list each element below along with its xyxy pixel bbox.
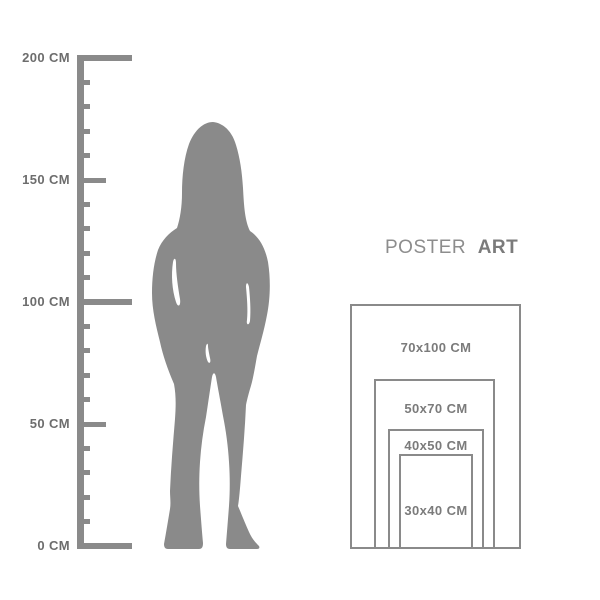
ruler-tick-150cm: [77, 178, 106, 183]
ruler-tick-10cm: [77, 519, 90, 524]
ruler-tick-90cm: [77, 324, 90, 329]
woman-silhouette-body: [152, 122, 270, 549]
ruler-label-150cm: 150 CM: [0, 171, 70, 189]
ruler-tick-20cm: [77, 495, 90, 500]
title-word-poster: POSTER: [385, 237, 466, 258]
ruler-label-100cm: 100 CM: [0, 293, 70, 311]
ruler-tick-80cm: [77, 348, 90, 353]
ruler-tick-120cm: [77, 251, 90, 256]
size-label-70x100: 70x100 CM: [351, 339, 521, 357]
ruler-tick-140cm: [77, 202, 90, 207]
ruler-label-0cm: 0 CM: [0, 537, 70, 555]
ruler-tick-50cm: [77, 422, 106, 427]
ruler-tick-200cm: [77, 55, 132, 61]
ruler-tick-110cm: [77, 275, 90, 280]
ruler-tick-130cm: [77, 226, 90, 231]
size-label-40x50: 40x50 CM: [351, 437, 521, 455]
poster-art-title: POSTER ART: [385, 237, 518, 259]
ruler-tick-70cm: [77, 373, 90, 378]
ruler-tick-30cm: [77, 470, 90, 475]
woman-silhouette-figure: [150, 118, 276, 552]
height-ruler: 200 CM150 CM100 CM50 CM0 CM: [0, 0, 140, 600]
ruler-tick-0cm: [77, 543, 132, 549]
ruler-tick-170cm: [77, 129, 90, 134]
ruler-label-200cm: 200 CM: [0, 49, 70, 67]
title-word-art: ART: [478, 237, 519, 258]
ruler-tick-60cm: [77, 397, 90, 402]
ruler-tick-100cm: [77, 299, 132, 305]
poster-size-guide-canvas: 200 CM150 CM100 CM50 CM0 CM POSTER ART 7…: [0, 0, 600, 600]
ruler-tick-190cm: [77, 80, 90, 85]
ruler-tick-180cm: [77, 104, 90, 109]
ruler-label-50cm: 50 CM: [0, 415, 70, 433]
ruler-tick-160cm: [77, 153, 90, 158]
size-label-30x40: 30x40 CM: [351, 502, 521, 520]
size-label-50x70: 50x70 CM: [351, 400, 521, 418]
ruler-tick-40cm: [77, 446, 90, 451]
